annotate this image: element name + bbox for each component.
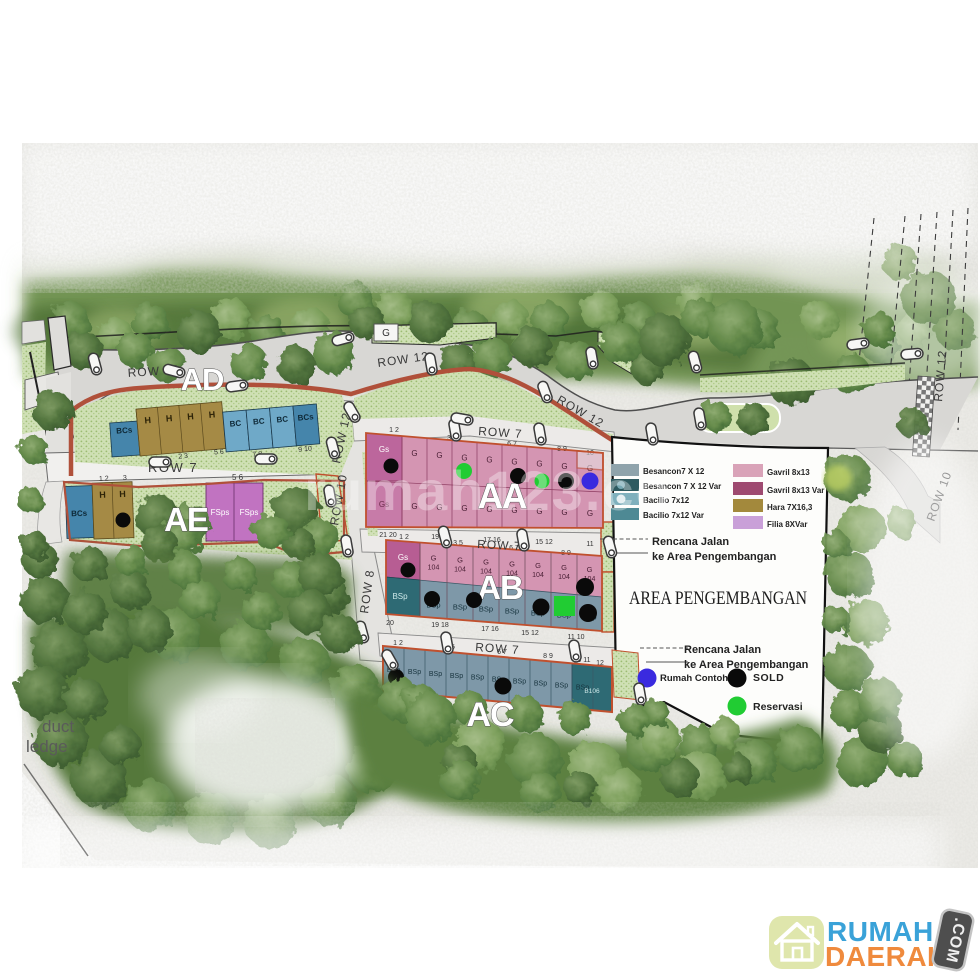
svg-text:H: H <box>99 490 106 500</box>
svg-text:BSp: BSp <box>471 675 484 682</box>
svg-text:rumah123.co: rumah123.co <box>304 459 672 522</box>
svg-text:BSp: BSp <box>392 592 408 601</box>
svg-text:AB: AB <box>477 569 523 606</box>
svg-text:104: 104 <box>532 572 544 579</box>
svg-text:Gavril 8x13 Var: Gavril 8x13 Var <box>767 486 824 495</box>
svg-text:H: H <box>165 413 172 424</box>
svg-text:Reservasi: Reservasi <box>753 701 803 713</box>
svg-text:BCs: BCs <box>71 509 88 519</box>
svg-text:BSp: BSp <box>408 669 421 676</box>
svg-text:ke Area Pengembangan: ke Area Pengembangan <box>684 659 809 671</box>
svg-text:G: G <box>587 565 593 574</box>
svg-text:H: H <box>119 489 126 499</box>
svg-text:BCs: BCs <box>297 412 314 422</box>
svg-text:5 6: 5 6 <box>214 449 224 457</box>
svg-text:17 16: 17 16 <box>481 626 499 633</box>
svg-text:1 2: 1 2 <box>99 476 109 483</box>
svg-text:AD: AD <box>181 362 224 397</box>
svg-text:G: G <box>411 449 417 458</box>
svg-text:BCs: BCs <box>116 425 133 435</box>
svg-text:SOLD: SOLD <box>753 672 784 684</box>
svg-text:ROW 7: ROW 7 <box>477 537 522 553</box>
svg-text:BSp: BSp <box>450 673 463 680</box>
svg-text:9 10: 9 10 <box>298 446 312 454</box>
svg-text:BC: BC <box>229 419 242 429</box>
svg-text:3: 3 <box>123 475 127 482</box>
svg-text:BSp: BSp <box>555 682 568 689</box>
svg-text:ledge: ledge <box>26 737 68 756</box>
svg-text:B106: B106 <box>584 688 600 695</box>
svg-text:1 2: 1 2 <box>389 427 399 434</box>
svg-text:G: G <box>457 555 463 564</box>
svg-text:G: G <box>483 557 489 566</box>
svg-text:H: H <box>144 415 151 426</box>
svg-text:BSp: BSp <box>429 671 442 678</box>
svg-text:duct: duct <box>42 717 74 736</box>
svg-text:AREA PENGEMBANGAN: AREA PENGEMBANGAN <box>629 588 807 609</box>
svg-text:Gs: Gs <box>379 445 389 454</box>
svg-text:11: 11 <box>586 541 593 548</box>
svg-text:Rumah Contoh: Rumah Contoh <box>660 673 728 684</box>
svg-text:104: 104 <box>454 566 466 573</box>
svg-text:19 18: 19 18 <box>431 622 449 629</box>
svg-text:20: 20 <box>386 620 394 627</box>
svg-text:Gavril 8x13: Gavril 8x13 <box>767 468 810 477</box>
svg-text:G: G <box>431 554 437 563</box>
svg-text:104: 104 <box>558 574 570 581</box>
svg-text:Gs: Gs <box>398 553 408 562</box>
svg-text:AE: AE <box>164 501 208 538</box>
svg-text:G: G <box>535 561 541 570</box>
svg-text:15 12: 15 12 <box>535 539 553 546</box>
svg-text:8 9: 8 9 <box>543 653 553 660</box>
svg-text:G: G <box>382 328 390 339</box>
svg-text:BSp: BSp <box>453 603 467 612</box>
svg-text:ke Area Pengembangan: ke Area Pengembangan <box>652 551 777 563</box>
svg-text:AC: AC <box>466 696 514 734</box>
svg-text:G: G <box>561 563 567 572</box>
svg-text:1 2: 1 2 <box>399 534 409 541</box>
svg-text:Hara 7X16,3: Hara 7X16,3 <box>767 503 813 512</box>
svg-text:H: H <box>187 411 194 422</box>
svg-text:BSp: BSp <box>534 680 547 687</box>
svg-text:Rencana Jalan: Rencana Jalan <box>652 536 729 548</box>
svg-text:FSps: FSps <box>211 508 230 517</box>
svg-text:G: G <box>509 559 515 568</box>
svg-text:H: H <box>208 409 215 420</box>
svg-text:21 20: 21 20 <box>379 532 397 539</box>
svg-text:FSps: FSps <box>240 508 259 517</box>
svg-text:Rencana Jalan: Rencana Jalan <box>684 644 761 656</box>
svg-text:BC: BC <box>276 414 289 424</box>
svg-text:BSp: BSp <box>479 605 493 614</box>
svg-text:15 12: 15 12 <box>521 630 539 637</box>
svg-text:BSp: BSp <box>513 679 526 686</box>
svg-text:1 2: 1 2 <box>393 640 403 647</box>
svg-text:104: 104 <box>428 565 440 572</box>
svg-text:DAERAH: DAERAH <box>825 941 948 972</box>
svg-text:BSp: BSp <box>505 607 519 616</box>
svg-text:Filia 8XVar: Filia 8XVar <box>767 520 807 529</box>
svg-text:BC: BC <box>253 417 266 427</box>
